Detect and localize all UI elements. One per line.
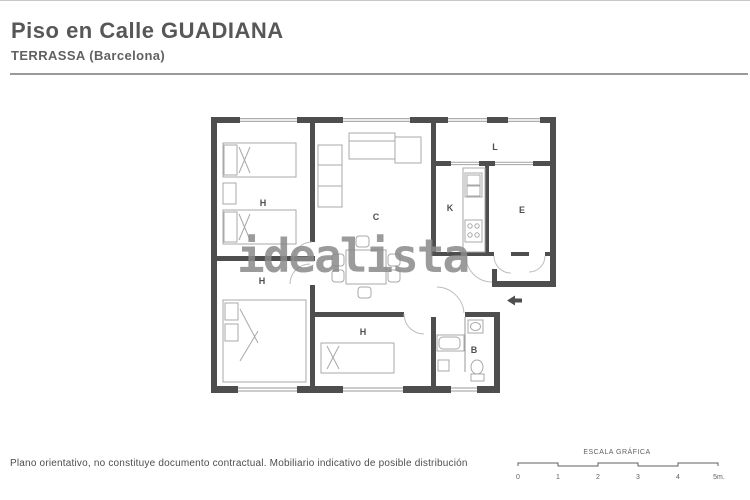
header-divider (10, 73, 748, 75)
room-label-gallery: L (492, 142, 498, 152)
floorplan-page: Piso en Calle GUADIANA TERRASSA (Barcelo… (0, 0, 750, 500)
page-subtitle: TERRASSA (Barcelona) (11, 48, 165, 63)
sofa (349, 133, 421, 163)
graphic-scale: ESCALA GRÁFICA 0 1 2 3 4 5m. (516, 449, 726, 484)
scale-title: ESCALA GRÁFICA (516, 449, 718, 456)
scale-tick-5: 5m. (713, 474, 725, 481)
scale-tick-3: 3 (636, 474, 640, 481)
entrance-arrow-icon (507, 296, 522, 306)
page-top-border (0, 0, 750, 1)
disclaimer-text: Plano orientativo, no constituye documen… (10, 458, 468, 469)
scale-tick-2: 2 (596, 474, 600, 481)
scale-tick-0: 0 (516, 474, 520, 481)
nightstand (223, 183, 236, 204)
room-label-kitchen: K (447, 203, 454, 213)
shelving-unit (318, 145, 342, 207)
bed-double (223, 300, 306, 382)
bed-single-1 (223, 143, 296, 177)
scale-tick-labels: 0 1 2 3 4 5m. (516, 474, 726, 484)
room-label-living-room: C (373, 212, 380, 222)
page-title: Piso en Calle GUADIANA (11, 18, 284, 44)
scale-bar (516, 457, 726, 469)
scale-tick-4: 4 (676, 474, 680, 481)
room-label-bedroom-bottom-middle: H (360, 327, 367, 337)
room-label-bedroom-top-left: H (260, 198, 267, 208)
watermark: idealista (237, 229, 497, 283)
bathtub (437, 335, 464, 371)
room-label-room-e: E (519, 205, 525, 215)
bed-single-3 (321, 343, 394, 373)
room-label-bathroom: B (471, 345, 478, 355)
scale-tick-1: 1 (556, 474, 560, 481)
